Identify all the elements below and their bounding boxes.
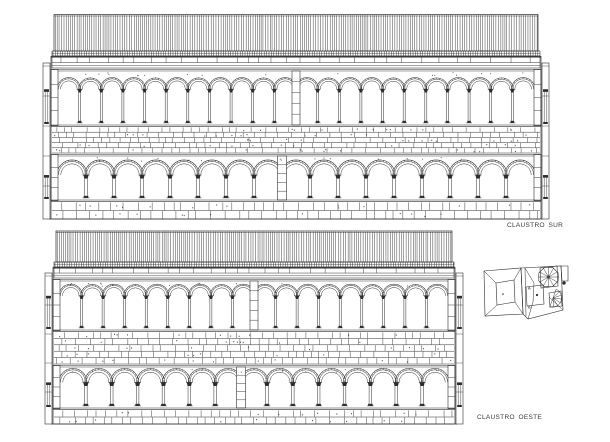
elevation-claustro-oeste (45, 231, 463, 424)
cloister-elevations-line-art (0, 0, 610, 442)
label-claustro-oeste: CLAUSTRO OESTE (477, 414, 542, 421)
key-plan (484, 266, 568, 319)
elevation-claustro-sur (43, 15, 549, 220)
label-claustro-sur: CLAUSTRO SUR (507, 222, 563, 229)
drawing-sheet: CLAUSTRO SUR CLAUSTRO OESTE (0, 0, 610, 442)
